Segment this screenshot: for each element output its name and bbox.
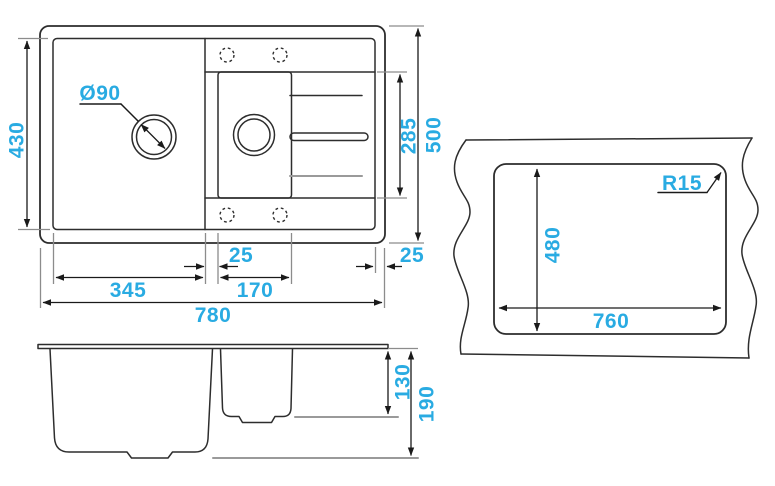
tap-hole-icon xyxy=(273,48,287,62)
drain-diameter-arrow xyxy=(141,125,165,149)
second-bowl-drain-outer xyxy=(234,115,275,156)
dim-label-rim-gap-right: 25 xyxy=(400,244,424,267)
tap-hole-icon xyxy=(220,48,234,62)
outer-rim xyxy=(40,26,385,243)
panel-torn-edge-left xyxy=(454,140,470,354)
side-view: 130 190 xyxy=(38,345,438,459)
dim-label-inner-depth: 430 xyxy=(5,122,28,159)
tap-hole-icon xyxy=(220,208,234,222)
second-bowl-profile xyxy=(221,349,293,423)
dim-label-cutout-height: 480 xyxy=(541,227,564,264)
dim-label-rim-gap-left: 25 xyxy=(229,244,253,267)
drain-callout-leader xyxy=(121,104,138,121)
drainboard-groove-middle xyxy=(290,133,368,141)
dim-label-overall-depth: 500 xyxy=(422,117,445,154)
dim-label-corner-radius: R15 xyxy=(662,172,702,195)
main-bowl-profile xyxy=(50,349,213,458)
dim-label-cutout-width: 760 xyxy=(593,310,630,333)
dim-label-overall-width: 780 xyxy=(195,304,232,327)
second-bowl xyxy=(218,72,292,198)
plan-view: Ø90 430 500 285 25 345 170 xyxy=(5,26,445,327)
cutout-view: 480 760 R15 xyxy=(454,138,758,358)
dim-label-second-bowl-width: 170 xyxy=(237,279,274,302)
radius-callout-leader xyxy=(707,173,721,193)
panel-torn-edge-right xyxy=(742,138,758,358)
sink-technical-drawing: Ø90 430 500 285 25 345 170 xyxy=(0,0,775,486)
dim-label-drainer-length: 285 xyxy=(397,118,420,155)
dim-label-main-bowl-width: 345 xyxy=(110,279,147,302)
worktop-edge xyxy=(38,345,388,349)
second-bowl-drain-inner xyxy=(238,119,270,151)
panel-top-edge xyxy=(466,138,752,140)
dim-label-main-bowl-depth: 190 xyxy=(415,386,438,423)
tap-hole-icon xyxy=(273,208,287,222)
drawing-canvas: Ø90 430 500 285 25 345 170 xyxy=(0,0,775,486)
inner-rim xyxy=(53,39,375,230)
dim-label-drain-diameter: Ø90 xyxy=(79,82,120,105)
panel-bottom-edge xyxy=(461,354,749,358)
